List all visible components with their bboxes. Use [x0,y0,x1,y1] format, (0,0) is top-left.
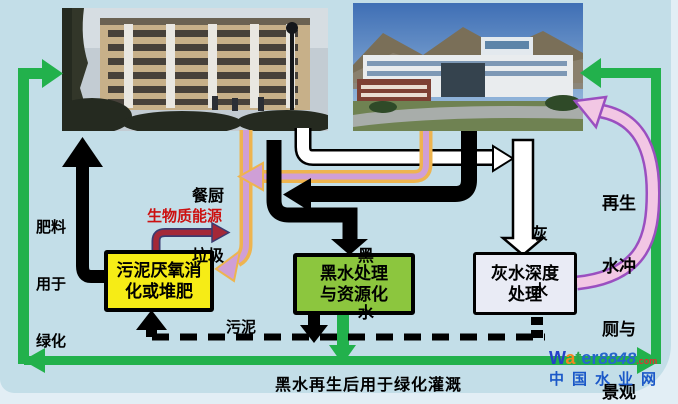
watermark-word: Water8848.com [549,349,664,370]
green-arrow-into-left-building [42,59,63,88]
black-water-label: 黑 水 [357,209,375,361]
green-arrow-into-right-building [580,58,601,88]
greywater-arrow-right [493,146,513,171]
grey-water-label: 灰 水 [531,187,549,339]
fertilizer-label: 肥料 用于 绿化 [36,180,66,389]
diagram-canvas: 污泥厌氧消 化或堆肥 黑水处理 与资源化 灰水深度 处理 肥料 用于 绿化 餐厨… [0,0,678,404]
watermark: Water8848.com 中国水业网 [549,349,664,389]
sludge-digestion-box-line1: 污泥厌氧消 [117,260,202,281]
flow-overlay [0,0,678,404]
fertilizer-arrow-up [62,137,103,167]
greywater-treatment-box-line1: 灰水深度 [491,263,559,284]
sludge-digestion-box-line2: 化或堆肥 [125,281,193,302]
sludge-label: 污泥 [226,316,256,337]
watermark-number: 8848 [598,349,636,368]
sludge-arrow-up-into-yellowbox [136,310,167,330]
blackwater-treatment-box-line1: 黑水处理 [320,263,388,284]
biomass-energy-label: 生物质能源 [147,205,222,226]
fertilizer-pipe [62,137,106,277]
blackwater-treatment-box-line2: 与资源化 [320,284,388,305]
bottom-note-label: 黑水再生后用于绿化灌溉 [275,371,462,395]
blackwater-treatment-box: 黑水处理 与资源化 [293,253,415,315]
watermark-tld: .com [636,356,657,366]
reclaimed-arrowhead [575,97,606,127]
watermark-site-name: 中国水业网 [549,371,664,389]
greywater-treatment-box: 灰水深度 处理 [473,252,577,315]
kitchen-waste-label: 餐厨 垃圾 [192,147,224,307]
blackwater-arrow-merge-left [283,178,311,212]
